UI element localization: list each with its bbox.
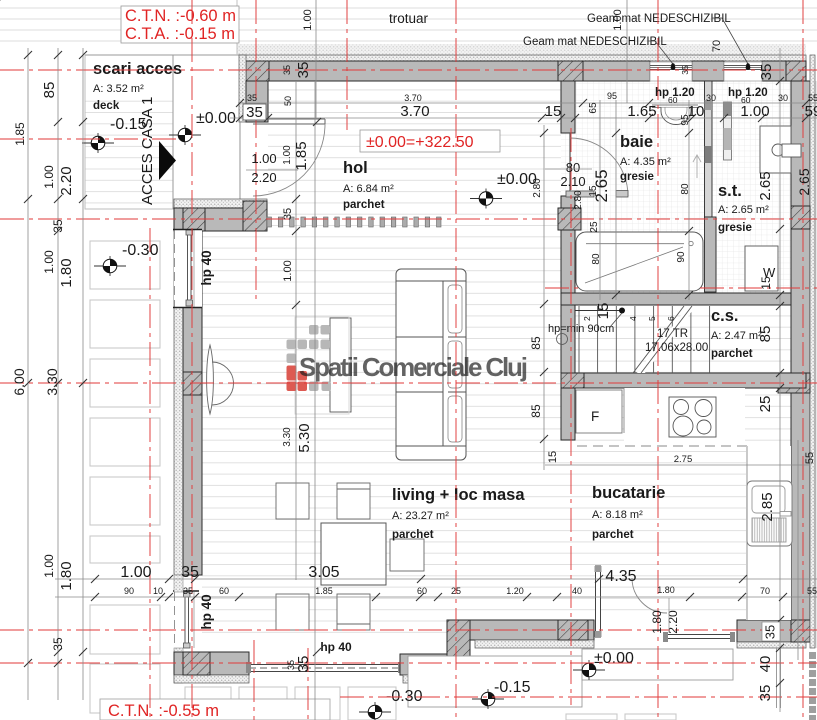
svg-text:35: 35: [181, 564, 199, 581]
svg-text:17.06x28.00: 17.06x28.00: [645, 342, 708, 354]
svg-text:-0.15: -0.15: [110, 116, 147, 133]
svg-text:hp 40: hp 40: [199, 250, 214, 285]
svg-text:A: 6.84 m²: A: 6.84 m²: [343, 183, 394, 195]
svg-text:1.65: 1.65: [627, 103, 656, 120]
svg-text:40: 40: [757, 656, 774, 673]
svg-text:baie: baie: [620, 133, 653, 151]
svg-text:1.00: 1.00: [740, 103, 769, 120]
svg-text:30: 30: [706, 93, 716, 103]
svg-text:Spatii Comerciale Cluj: Spatii Comerciale Cluj: [299, 352, 528, 382]
svg-text:A: 2.47 m²: A: 2.47 m²: [711, 330, 762, 342]
svg-text:1.80: 1.80: [58, 258, 75, 287]
svg-text:hp=min 90cm: hp=min 90cm: [548, 323, 614, 335]
svg-text:hp 40: hp 40: [320, 640, 352, 654]
svg-text:35: 35: [762, 625, 777, 639]
svg-text:1.00: 1.00: [42, 165, 56, 189]
svg-text:35: 35: [295, 656, 312, 673]
svg-text:c.s.: c.s.: [711, 307, 739, 325]
svg-text:85: 85: [529, 404, 543, 418]
svg-text:1.00: 1.00: [42, 250, 56, 274]
svg-text:parchet: parchet: [392, 529, 434, 541]
svg-text:C.T.N. :-0.55 m: C.T.N. :-0.55 m: [108, 702, 219, 720]
svg-text:1.80: 1.80: [650, 610, 664, 634]
svg-text:30: 30: [778, 93, 788, 103]
svg-text:35: 35: [282, 208, 294, 220]
svg-text:-0.30: -0.30: [386, 688, 423, 705]
svg-text:2.20: 2.20: [58, 166, 75, 195]
svg-text:3.30: 3.30: [282, 427, 293, 447]
svg-text:±0.00=+322.50: ±0.00=+322.50: [366, 134, 474, 151]
svg-text:3.70: 3.70: [400, 103, 429, 120]
svg-text:2.20: 2.20: [666, 610, 680, 634]
svg-text:35: 35: [183, 586, 193, 596]
svg-text:2.75: 2.75: [674, 454, 693, 465]
svg-text:35: 35: [246, 104, 263, 121]
svg-text:scari acces: scari acces: [93, 60, 182, 78]
svg-text:15: 15: [545, 103, 562, 120]
svg-text:1.80: 1.80: [657, 585, 675, 595]
svg-text:1.80: 1.80: [58, 561, 75, 590]
svg-text:40: 40: [572, 586, 582, 596]
svg-text:1.00: 1.00: [251, 151, 276, 166]
svg-text:25: 25: [757, 396, 774, 413]
svg-text:85: 85: [529, 336, 543, 350]
svg-text:65: 65: [588, 102, 599, 114]
svg-text:15: 15: [588, 185, 599, 197]
svg-text:3.05: 3.05: [308, 564, 339, 581]
svg-text:60: 60: [668, 95, 678, 105]
svg-text:1.85: 1.85: [293, 141, 310, 170]
svg-text:80: 80: [566, 160, 580, 175]
svg-text:4.35: 4.35: [605, 568, 636, 585]
svg-text:A: 3.52 m²: A: 3.52 m²: [93, 83, 144, 95]
svg-text:±0.00: ±0.00: [594, 650, 634, 667]
svg-text:Geam mat NEDESCHIZIBIL: Geam mat NEDESCHIZIBIL: [587, 13, 731, 25]
svg-text:1.00: 1.00: [302, 9, 314, 30]
svg-text:parchet: parchet: [711, 348, 753, 360]
svg-text:A: 8.18 m²: A: 8.18 m²: [592, 509, 643, 521]
svg-text:55: 55: [807, 586, 817, 596]
svg-text:60: 60: [219, 586, 229, 596]
svg-text:parchet: parchet: [592, 529, 634, 541]
svg-text:1.00: 1.00: [42, 554, 56, 578]
svg-text:35: 35: [758, 64, 775, 81]
svg-text:bucatarie: bucatarie: [592, 484, 665, 502]
svg-text:F: F: [591, 409, 599, 424]
svg-text:25: 25: [589, 221, 600, 233]
svg-text:C.T.N. :-0.60 m: C.T.N. :-0.60 m: [125, 7, 236, 25]
svg-text:35: 35: [247, 93, 257, 103]
svg-text:2.80: 2.80: [532, 178, 543, 198]
svg-text:1.85: 1.85: [315, 586, 333, 596]
svg-text:35: 35: [295, 62, 312, 79]
svg-text:2.80: 2.80: [573, 190, 584, 210]
svg-text:15: 15: [547, 451, 559, 463]
svg-text:3.70: 3.70: [404, 93, 422, 103]
svg-text:hp 40: hp 40: [199, 594, 214, 629]
svg-text:deck: deck: [93, 100, 120, 112]
svg-text:10: 10: [153, 586, 163, 596]
svg-text:70: 70: [760, 586, 770, 596]
svg-text:Geam mat NEDESCHIZIBIL: Geam mat NEDESCHIZIBIL: [523, 36, 667, 48]
svg-text:59: 59: [805, 103, 817, 120]
svg-text:living + loc masa: living + loc masa: [392, 486, 525, 504]
svg-text:4: 4: [628, 316, 638, 321]
svg-text:35: 35: [282, 65, 292, 75]
svg-text:-0.15: -0.15: [494, 679, 531, 696]
svg-text:90: 90: [676, 251, 687, 263]
svg-text:ACCES CASA 1: ACCES CASA 1: [139, 97, 156, 205]
svg-text:50: 50: [283, 96, 293, 106]
svg-text:gresie: gresie: [620, 171, 654, 183]
svg-text:±0.00: ±0.00: [196, 110, 236, 127]
svg-text:hol: hol: [343, 159, 368, 177]
svg-text:85: 85: [757, 326, 774, 343]
svg-text:2.65: 2.65: [757, 171, 774, 200]
svg-text:55: 55: [808, 93, 817, 103]
svg-text:1.00: 1.00: [282, 145, 293, 165]
svg-text:2.20: 2.20: [251, 170, 276, 185]
svg-text:2: 2: [582, 316, 592, 321]
svg-text:1.00: 1.00: [120, 564, 151, 581]
svg-text:80: 80: [591, 253, 602, 265]
svg-text:35: 35: [51, 219, 65, 233]
svg-text:1.85: 1.85: [13, 122, 27, 146]
svg-text:80: 80: [680, 183, 691, 195]
svg-text:6.00: 6.00: [11, 368, 27, 395]
svg-text:1.20: 1.20: [506, 586, 524, 596]
svg-text:A: 2.65 m²: A: 2.65 m²: [718, 204, 769, 216]
svg-text:55: 55: [804, 452, 816, 464]
svg-text:95: 95: [680, 114, 691, 126]
svg-text:60: 60: [417, 586, 427, 596]
svg-text:70: 70: [711, 40, 723, 52]
svg-text:2.85: 2.85: [759, 492, 776, 521]
svg-text:C.T.A. :-0.15 m: C.T.A. :-0.15 m: [125, 25, 235, 43]
svg-text:35: 35: [757, 685, 774, 702]
svg-text:3.30: 3.30: [44, 368, 60, 395]
svg-text:5.30: 5.30: [296, 423, 313, 452]
svg-text:95: 95: [607, 91, 617, 101]
svg-text:2.65: 2.65: [796, 168, 812, 195]
svg-text:17 TR: 17 TR: [657, 328, 688, 340]
svg-text:6: 6: [666, 316, 676, 321]
svg-text:A: 4.35 m²: A: 4.35 m²: [620, 156, 671, 168]
svg-text:90: 90: [124, 586, 134, 596]
svg-text:s.t.: s.t.: [718, 182, 742, 200]
svg-text:35: 35: [51, 637, 65, 651]
svg-text:25: 25: [451, 586, 461, 596]
svg-text:gresie: gresie: [718, 222, 752, 234]
svg-text:2.10: 2.10: [560, 174, 585, 189]
svg-text:15: 15: [759, 276, 773, 290]
svg-text:15: 15: [595, 303, 612, 320]
svg-text:parchet: parchet: [343, 199, 385, 211]
svg-text:trotuar: trotuar: [389, 11, 429, 26]
svg-text:A: 23.27 m²: A: 23.27 m²: [392, 510, 449, 522]
svg-text:60: 60: [741, 95, 751, 105]
svg-text:85: 85: [41, 82, 58, 99]
svg-text:-0.30: -0.30: [122, 242, 159, 259]
svg-text:1.00: 1.00: [612, 9, 624, 30]
svg-text:1.00: 1.00: [282, 260, 294, 281]
svg-text:5: 5: [647, 316, 657, 321]
